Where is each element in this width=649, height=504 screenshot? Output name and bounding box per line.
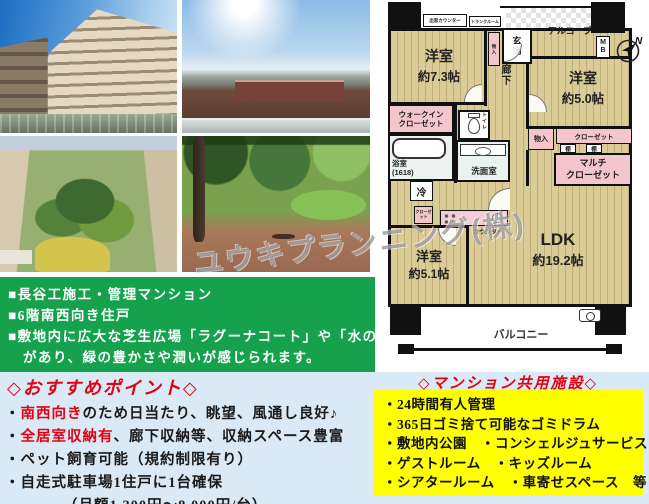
bullet: ・: [5, 452, 21, 468]
vanity-counter: [460, 144, 506, 156]
tree-trunk-shape: [193, 136, 204, 242]
recommend-title: ◇おすすめポイント◇: [7, 374, 373, 400]
balcony-label: バルコニー: [476, 326, 566, 342]
note-line: ■敷地内に広大な芝生広場「ラグーナコート」や「水のテラス」: [8, 326, 375, 347]
photo-building-exterior: [0, 0, 177, 133]
facility-item: ・365日ゴミ捨て可能なゴミドラム: [383, 415, 643, 435]
room-size: 約7.3帖: [396, 66, 482, 85]
item-text: 、廊下収納等、収納スペース豊富: [114, 429, 345, 445]
wall: [500, 6, 610, 8]
walk-in-closet: ウォークイン クローゼット: [388, 104, 454, 134]
recommend-item: ・ペット飼育可能（規約制限有り）: [5, 449, 373, 472]
wall: [484, 28, 487, 106]
facility-item: ・シアタールーム ・車寄せスペース 等: [383, 473, 643, 493]
highlight-text: 南西向き: [21, 406, 83, 422]
shelf: 棚: [560, 144, 576, 153]
bathtub: [392, 138, 446, 159]
room-7_3-label: 洋室 約7.3帖: [396, 46, 482, 85]
bathroom-label: 浴室 (1618): [392, 159, 432, 177]
building-notes-box: ■長谷工施工・管理マンション ■6階南西向き住戸 ■敷地内に広大な芝生広場「ラグ…: [0, 277, 375, 372]
lawn-shape: [35, 237, 109, 272]
balcony-rail-end: [606, 344, 622, 354]
corridor-label: 廊下: [497, 64, 512, 86]
trunk-room: トランクルーム: [469, 16, 501, 27]
photo-view-from-balcony: [182, 0, 370, 133]
shelf: 棚: [586, 144, 602, 153]
recommend-section: ◇おすすめポイント◇ ・南西向きのため日当たり、眺望、風通し良好♪ ・全居室収納…: [5, 372, 373, 504]
washroom-label: 洗面室: [462, 165, 506, 177]
bullet: ・: [5, 475, 21, 491]
sink-icon: [475, 147, 491, 156]
wall-block: [388, 2, 421, 29]
balcony-rail: [401, 348, 621, 351]
room-size: 約5.1帖: [392, 265, 466, 282]
closet-5_0: クローゼット: [556, 128, 632, 144]
svg-text:N: N: [635, 36, 643, 47]
room-name: 洋室: [396, 46, 482, 66]
note-line: ■長谷工施工・管理マンション: [8, 284, 375, 305]
rooftop-shape: [235, 80, 344, 101]
recommend-item: ・全居室収納有、廊下収納等、収納スペース豊富: [5, 426, 373, 449]
balcony-rail-end: [398, 344, 414, 354]
facility-item: ・24時間有人管理: [383, 395, 643, 415]
room-size: 約19.2帖: [503, 250, 613, 269]
slop-sink-bowl: [586, 312, 595, 321]
building-facade-shape: [32, 0, 177, 117]
recommend-item: ・自走式駐車場1住戸に1台確保: [5, 472, 373, 495]
wall: [526, 58, 529, 128]
slop-sink: [579, 309, 601, 322]
building-side-shape: [0, 37, 48, 122]
note-line: があり、緑の豊かさや潤いが感じられます。: [8, 347, 375, 368]
north-compass-icon: N: [614, 34, 646, 66]
fridge-space: 冷: [410, 181, 433, 201]
recommend-item: ・南西向きのため日当たり、眺望、風通し良好♪: [5, 403, 373, 426]
multi-closet: マルチ クローゼット: [554, 153, 632, 186]
item-text: 自走式駐車場1住戸に1台確保: [21, 475, 224, 491]
fence-shape: [0, 114, 177, 133]
room-5_0-label: 洋室 約5.0帖: [540, 68, 626, 107]
flyer-canvas: ■長谷工施工・管理マンション ■6階南西向き住戸 ■敷地内に広大な芝生広場「ラグ…: [0, 0, 649, 504]
floorplan: 玄関 物入 アルコーブ 出窓カウンター トランクルーム MB N 洋室 約7.3…: [376, 2, 649, 368]
bay-window-counter: 出窓カウンター: [423, 14, 467, 27]
bullet: ・: [5, 429, 21, 445]
highlight-text: 全居室収納有: [21, 429, 114, 445]
toilet-label: トイレ: [481, 112, 488, 130]
item-text: （月額1,200円～8,000円/台）: [63, 498, 267, 504]
room-size: 約5.0帖: [540, 88, 626, 107]
bullet: ・: [5, 406, 21, 422]
balcony-rail-shape: [182, 118, 370, 133]
wall-block: [390, 307, 421, 335]
room-name: 洋室: [540, 68, 626, 88]
facility-item: ・敷地内公園 ・コンシェルジュサービス: [383, 434, 643, 454]
toilet-bowl: [468, 118, 480, 134]
entrance-storage-label: 物入: [491, 44, 497, 55]
photo-courtyard-aerial: [0, 136, 177, 272]
facility-item: ・ゲストルーム ・キッズルーム: [383, 454, 643, 474]
storage-right: 物入: [528, 128, 554, 150]
recommend-item: （月額1,200円～8,000円/台）: [5, 495, 373, 504]
meter-box: MB: [596, 36, 610, 58]
facilities-box: ・24時間有人管理 ・365日ゴミ捨て可能なゴミドラム ・敷地内公園 ・コンシェ…: [373, 390, 643, 496]
entrance-storage: 物入: [488, 32, 500, 66]
lawn-shape: [291, 190, 366, 220]
item-text: のため日当たり、眺望、風通し良好♪: [83, 406, 339, 422]
item-text: ペット飼育可能（規約制限有り）: [21, 452, 254, 468]
wall: [526, 150, 529, 186]
roof-shape: [0, 250, 32, 264]
note-line: ■6階南西向き住戸: [8, 305, 375, 326]
